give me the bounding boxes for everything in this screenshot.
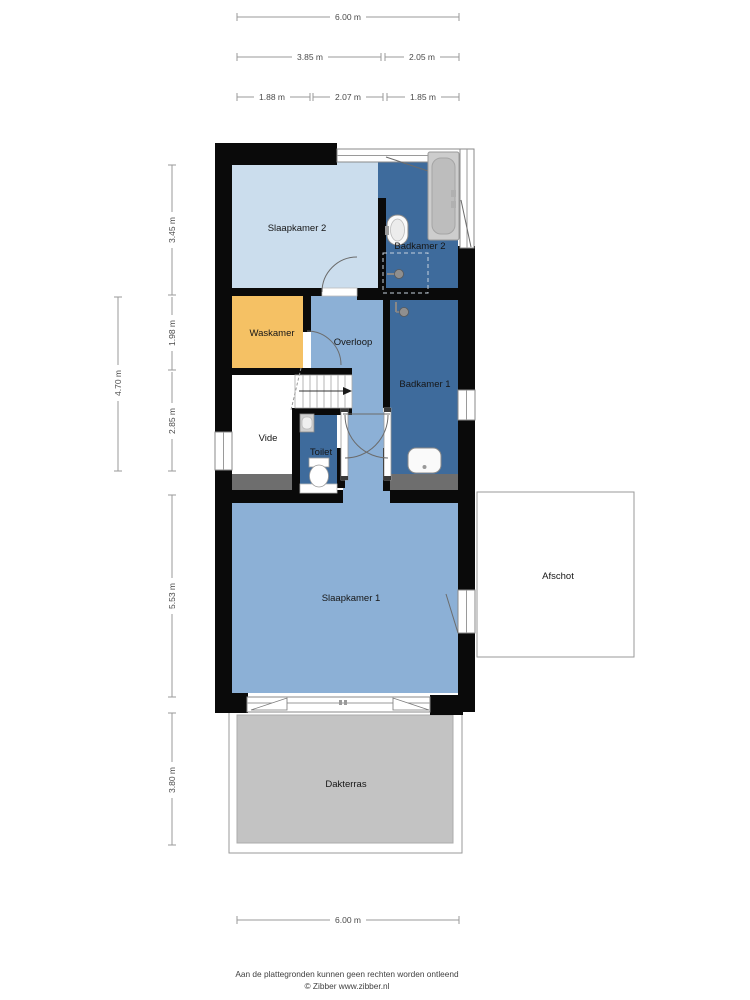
- dimension-top-total: 6.00 m: [237, 12, 459, 22]
- dimension-label: 3.80 m: [167, 767, 177, 793]
- dimension-label: 2.85 m: [167, 408, 177, 434]
- dimension-label: 6.00 m: [335, 915, 361, 925]
- shower-head: [395, 270, 404, 279]
- sink-faucet: [385, 226, 389, 235]
- wall: [357, 288, 458, 300]
- dimension-top-row3: 1.88 m 2.07 m 1.85 m: [237, 92, 459, 102]
- knee-wall-bar-left: [232, 474, 295, 490]
- wall: [303, 296, 311, 332]
- room-label: Afschot: [542, 571, 574, 582]
- sink-drain: [423, 465, 427, 469]
- sink-bowl: [391, 219, 405, 241]
- dimension-top-row2: 3.85 m 2.05 m: [237, 52, 459, 62]
- footer: Aan de plattegronden kunnen geen rechten…: [235, 969, 459, 991]
- dimension-label: 1.88 m: [259, 92, 285, 102]
- door-jamb: [341, 408, 348, 480]
- dimension-label: 1.98 m: [167, 320, 177, 346]
- wall: [383, 300, 390, 408]
- bathtub-faucet: [451, 190, 456, 197]
- wall: [458, 420, 475, 590]
- door-jamb-cap: [341, 476, 348, 480]
- wall: [215, 693, 248, 713]
- dimension-label: 3.45 m: [167, 217, 177, 243]
- window-mullion: [344, 700, 347, 705]
- dimension-label: 3.85 m: [297, 52, 323, 62]
- room-label: Badkamer 1: [399, 379, 450, 390]
- door-threshold: [322, 288, 357, 296]
- dimension-bottom-total: 6.00 m: [237, 915, 459, 925]
- shower-head: [400, 308, 409, 317]
- footer-credit: © Zibber www.zibber.nl: [305, 981, 390, 991]
- sink-badkamer1-icon: [408, 448, 441, 473]
- room-label: Toilet: [310, 447, 333, 458]
- floor-plan-svg: 6.00 m 3.85 m 2.05 m 1.88 m 2.07 m 1.85 …: [0, 0, 750, 1000]
- room-afschot: Afschot: [477, 492, 634, 657]
- door-jamb-cap: [341, 408, 348, 412]
- dimension-label: 1.85 m: [410, 92, 436, 102]
- dimension-label: 2.07 m: [335, 92, 361, 102]
- sink-toilet-icon: [300, 414, 314, 432]
- room-dakterras: Dakterras: [229, 711, 462, 853]
- wall: [430, 695, 463, 715]
- room-label: Slaapkamer 2: [268, 223, 327, 234]
- room-label: Overloop: [334, 337, 373, 348]
- toilet-icon: [309, 458, 329, 487]
- toilet-bowl: [310, 465, 329, 487]
- door-jamb-cap: [384, 408, 391, 412]
- room-label: Vide: [259, 433, 278, 444]
- wall: [215, 470, 232, 712]
- dimension-label: 5.53 m: [167, 583, 177, 609]
- room-vide: [232, 375, 295, 474]
- wall: [390, 490, 458, 503]
- dimension-label: 6.00 m: [335, 12, 361, 22]
- knee-wall-bar-right: [390, 474, 458, 490]
- dimension-label: 4.70 m: [113, 370, 123, 396]
- bathtub-icon: [428, 152, 459, 240]
- room-label: Waskamer: [249, 328, 294, 339]
- floorplan-page: 6.00 m 3.85 m 2.05 m 1.88 m 2.07 m 1.85 …: [0, 0, 750, 1000]
- window-mullion: [339, 700, 342, 705]
- wall: [215, 143, 337, 165]
- dimension-left-outer: 4.70 m: [113, 297, 123, 471]
- sink-bowl: [302, 417, 312, 429]
- wall: [215, 143, 232, 432]
- wall: [458, 246, 475, 390]
- wall: [232, 288, 322, 296]
- sink-basin: [408, 448, 441, 473]
- wall: [292, 408, 300, 490]
- door-jamb-cap: [384, 476, 391, 480]
- room-label: Badkamer 2: [394, 241, 445, 252]
- dimension-left-inner: 3.45 m 1.98 m 2.85 m 5.53 m 3.80 m: [167, 165, 177, 845]
- wall: [232, 368, 352, 375]
- footer-disclaimer: Aan de plattegronden kunnen geen rechten…: [235, 969, 459, 979]
- room-label: Dakterras: [325, 779, 366, 790]
- room-label: Slaapkamer 1: [322, 593, 381, 604]
- dimension-label: 2.05 m: [409, 52, 435, 62]
- wall: [378, 198, 386, 296]
- bathtub-faucet: [451, 201, 456, 208]
